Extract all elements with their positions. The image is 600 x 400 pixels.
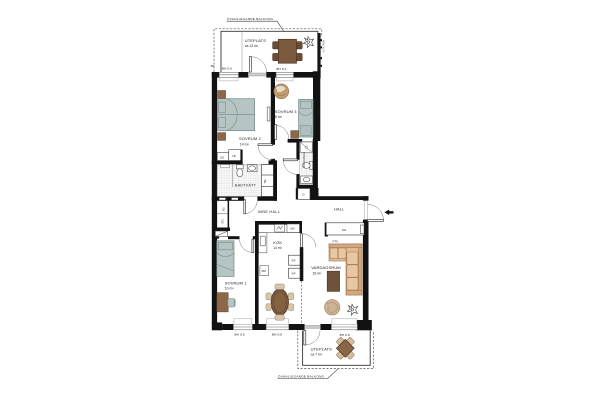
svg-text:10 m²: 10 m² bbox=[225, 286, 235, 290]
svg-text:KÖK: KÖK bbox=[273, 240, 282, 245]
svg-text:BH 0,8: BH 0,8 bbox=[272, 332, 282, 336]
svg-text:BH 0,8: BH 0,8 bbox=[235, 332, 245, 336]
svg-text:VARDAGSRUM: VARDAGSRUM bbox=[311, 265, 341, 270]
svg-text:SOVRUM 1: SOVRUM 1 bbox=[225, 280, 248, 285]
svg-text:WC/DUSCH: WC/DUSCH bbox=[302, 152, 306, 168]
svg-text:HALL: HALL bbox=[334, 207, 345, 211]
svg-text:K/F: K/F bbox=[292, 271, 296, 275]
svg-text:AVSKÄRMN.: AVSKÄRMN. bbox=[323, 39, 326, 53]
svg-text:14 m²: 14 m² bbox=[240, 143, 250, 147]
svg-text:UM: UM bbox=[290, 227, 294, 231]
svg-text:K/F: K/F bbox=[292, 258, 296, 262]
svg-text:STL: STL bbox=[220, 218, 224, 223]
svg-text:8 m²: 8 m² bbox=[275, 115, 283, 119]
svg-text:BH 0,6: BH 0,6 bbox=[222, 67, 232, 71]
svg-text:SG: SG bbox=[221, 207, 225, 211]
svg-text:FTV: FTV bbox=[333, 239, 339, 243]
svg-text:ca 7 m²: ca 7 m² bbox=[311, 353, 324, 357]
svg-text:UTEPLATS: UTEPLATS bbox=[311, 347, 333, 352]
svg-text:LB: LB bbox=[232, 154, 235, 158]
svg-text:16 m²: 16 m² bbox=[312, 272, 322, 276]
svg-text:ÖVANLIGGANDE BALKONG: ÖVANLIGGANDE BALKONG bbox=[278, 374, 325, 378]
svg-text:BH 0,6: BH 0,6 bbox=[276, 67, 286, 71]
svg-text:BADTVÄTT: BADTVÄTT bbox=[235, 183, 257, 187]
svg-text:BH 0,8: BH 0,8 bbox=[340, 333, 350, 337]
svg-text:SOVRUM 3: SOVRUM 3 bbox=[275, 109, 298, 114]
svg-text:INRE HALL: INRE HALL bbox=[258, 210, 280, 214]
svg-text:DM: DM bbox=[262, 269, 266, 273]
svg-text:ca 13 m²: ca 13 m² bbox=[245, 44, 259, 48]
svg-text:14 m²: 14 m² bbox=[273, 246, 282, 250]
svg-text:SR: SR bbox=[211, 64, 215, 68]
svg-text:SG: SG bbox=[342, 228, 347, 232]
svg-text:UTEPLATS: UTEPLATS bbox=[245, 38, 267, 43]
svg-text:SOVRUM 2: SOVRUM 2 bbox=[239, 136, 262, 141]
svg-text:SG: SG bbox=[220, 155, 224, 159]
svg-text:ÖVANLIGGANDE BALKONG: ÖVANLIGGANDE BALKONG bbox=[227, 17, 274, 21]
